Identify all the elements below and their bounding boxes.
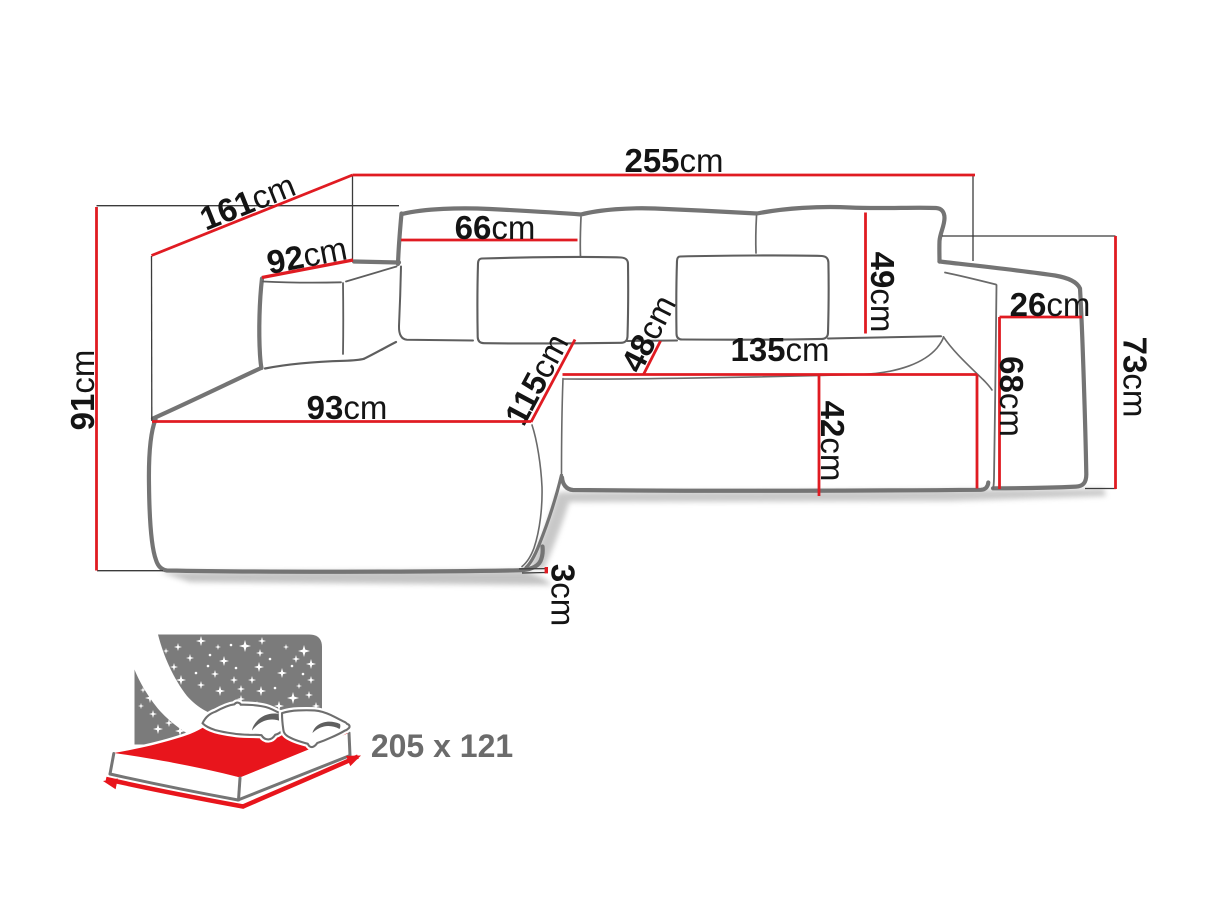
svg-text:42cm: 42cm (814, 401, 851, 482)
svg-text:49cm: 49cm (864, 252, 901, 333)
svg-text:91cm: 91cm (64, 350, 101, 431)
svg-text:73cm: 73cm (1116, 337, 1153, 418)
svg-text:255cm: 255cm (624, 142, 723, 179)
svg-text:92cm: 92cm (264, 229, 350, 281)
svg-text:135cm: 135cm (730, 331, 829, 368)
svg-text:161cm: 161cm (195, 166, 301, 237)
svg-text:3cm: 3cm (544, 564, 581, 626)
svg-text:68cm: 68cm (993, 356, 1030, 437)
svg-text:66cm: 66cm (455, 209, 536, 246)
svg-text:26cm: 26cm (1010, 286, 1091, 323)
svg-text:93cm: 93cm (307, 389, 388, 426)
svg-text:205 x 121: 205 x 121 (371, 728, 513, 764)
